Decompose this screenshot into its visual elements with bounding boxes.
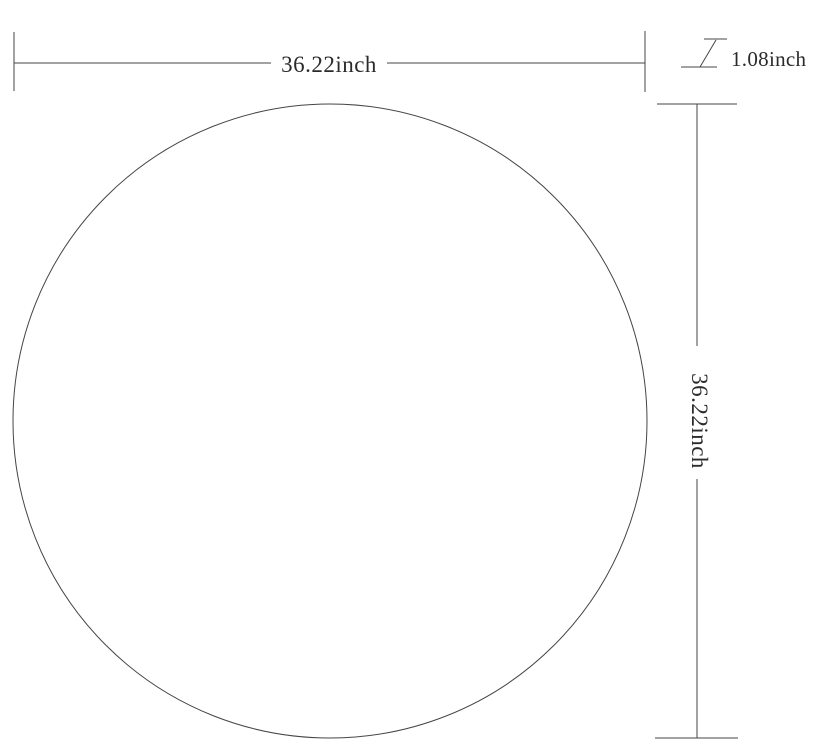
thickness-dimension-label: 1.08inch	[731, 49, 806, 70]
width-dimension-label: 36.22inch	[229, 53, 429, 76]
dimension-diagram: 36.22inch 1.08inch 36.22inch	[0, 0, 820, 754]
circle-outline	[13, 104, 647, 738]
thickness-edge-icon	[681, 39, 727, 67]
thickness-icon-diagonal-line	[700, 40, 716, 67]
height-dimension-label: 36.22inch	[687, 321, 711, 521]
